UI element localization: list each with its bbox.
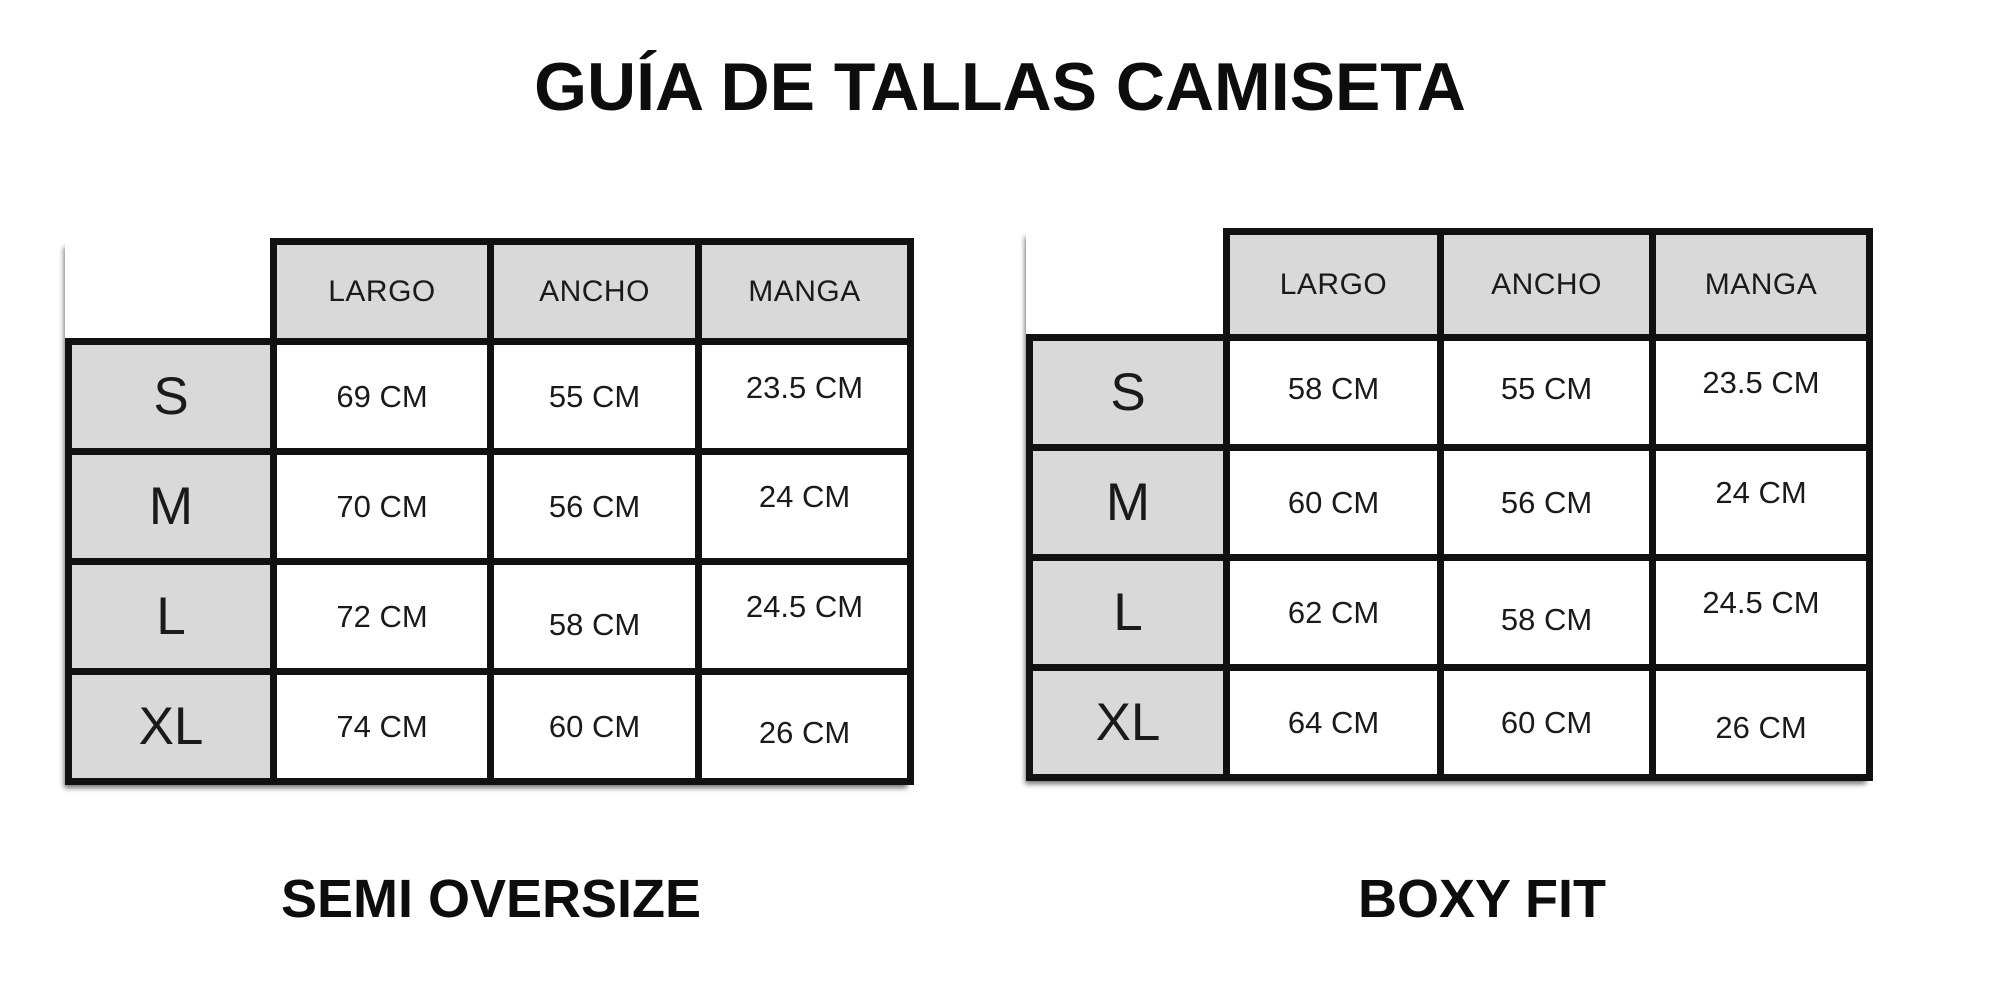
cell-largo-xl: 64 CM (1227, 668, 1441, 778)
cell-manga-m: 24 CM (1653, 448, 1870, 558)
column-header-ancho: ANCHO (1441, 232, 1653, 338)
table-row: S 58 CM 55 CM 23.5 CM (1030, 338, 1870, 448)
column-header-ancho: ANCHO (491, 242, 699, 342)
cell-manga-s: 23.5 CM (1653, 338, 1870, 448)
column-header-manga: MANGA (1653, 232, 1870, 338)
size-label-xl: XL (1030, 668, 1227, 778)
column-header-manga: MANGA (699, 242, 911, 342)
size-guide: GUÍA DE TALLAS CAMISETA LARGO ANCHO MANG… (0, 0, 2000, 1000)
boxy-fit-table: LARGO ANCHO MANGA S 58 CM 55 CM 23.5 CM … (1026, 228, 1873, 781)
cell-largo-s: 69 CM (274, 342, 491, 452)
cell-largo-m: 70 CM (274, 452, 491, 562)
cell-ancho-l: 58 CM (491, 562, 699, 672)
header-row: LARGO ANCHO MANGA (69, 242, 911, 342)
table-row: L 62 CM 58 CM 24.5 CM (1030, 558, 1870, 668)
empty-corner-cell (1030, 232, 1227, 338)
table-row: L 72 CM 58 CM 24.5 CM (69, 562, 911, 672)
cell-largo-xl: 74 CM (274, 672, 491, 782)
fit-label-boxy-fit: BOXY FIT (1061, 868, 1903, 930)
cell-ancho-m: 56 CM (491, 452, 699, 562)
cell-ancho-s: 55 CM (1441, 338, 1653, 448)
cell-largo-l: 72 CM (274, 562, 491, 672)
table-row: XL 74 CM 60 CM 26 CM (69, 672, 911, 782)
cell-largo-s: 58 CM (1227, 338, 1441, 448)
cell-manga-l: 24.5 CM (699, 562, 911, 672)
table-row: M 70 CM 56 CM 24 CM (69, 452, 911, 562)
cell-ancho-l: 58 CM (1441, 558, 1653, 668)
cell-ancho-xl: 60 CM (491, 672, 699, 782)
size-label-xl: XL (69, 672, 274, 782)
size-label-m: M (1030, 448, 1227, 558)
column-header-largo: LARGO (1227, 232, 1441, 338)
cell-ancho-m: 56 CM (1441, 448, 1653, 558)
size-label-s: S (1030, 338, 1227, 448)
cell-manga-m: 24 CM (699, 452, 911, 562)
size-label-l: L (69, 562, 274, 672)
cell-manga-xl: 26 CM (699, 672, 911, 782)
cell-ancho-s: 55 CM (491, 342, 699, 452)
empty-corner-cell (69, 242, 274, 342)
semi-oversize-table: LARGO ANCHO MANGA S 69 CM 55 CM 23.5 CM … (65, 238, 914, 785)
table-row: XL 64 CM 60 CM 26 CM (1030, 668, 1870, 778)
fit-label-semi-oversize: SEMI OVERSIZE (70, 868, 912, 930)
column-header-largo: LARGO (274, 242, 491, 342)
cell-manga-s: 23.5 CM (699, 342, 911, 452)
cell-ancho-xl: 60 CM (1441, 668, 1653, 778)
size-label-m: M (69, 452, 274, 562)
cell-largo-l: 62 CM (1227, 558, 1441, 668)
size-label-s: S (69, 342, 274, 452)
cell-manga-xl: 26 CM (1653, 668, 1870, 778)
table-row: M 60 CM 56 CM 24 CM (1030, 448, 1870, 558)
table-row: S 69 CM 55 CM 23.5 CM (69, 342, 911, 452)
cell-manga-l: 24.5 CM (1653, 558, 1870, 668)
cell-largo-m: 60 CM (1227, 448, 1441, 558)
size-label-l: L (1030, 558, 1227, 668)
header-row: LARGO ANCHO MANGA (1030, 232, 1870, 338)
page-title: GUÍA DE TALLAS CAMISETA (0, 48, 2000, 126)
